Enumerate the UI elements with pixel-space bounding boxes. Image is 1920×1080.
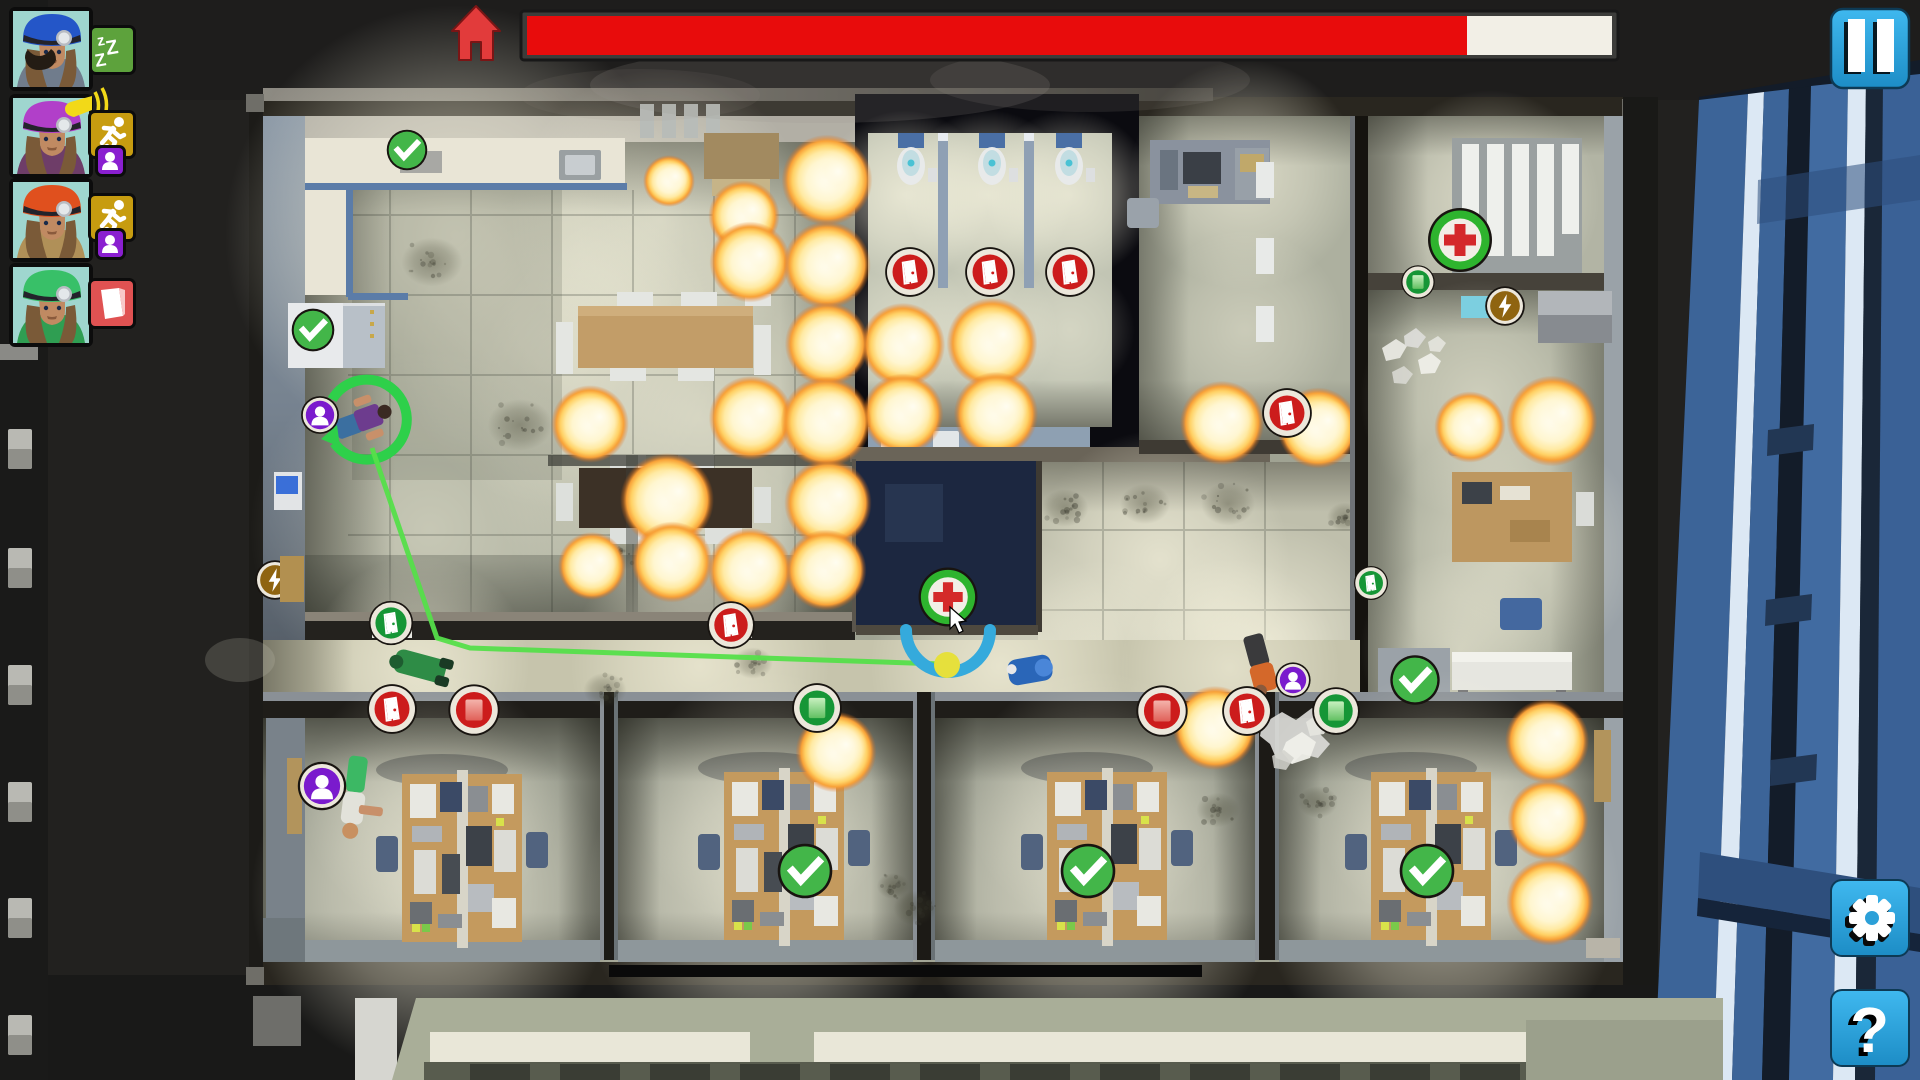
svg-text:?: ? — [1850, 994, 1889, 1066]
